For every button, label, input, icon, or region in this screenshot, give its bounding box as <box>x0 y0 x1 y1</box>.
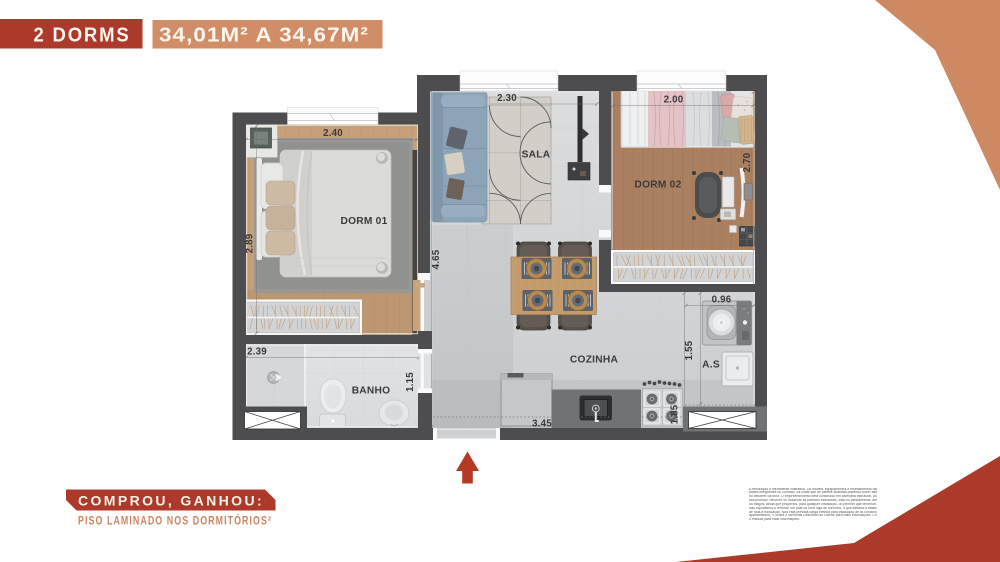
svg-text:COZINHA: COZINHA <box>570 355 619 366</box>
svg-text:0.96: 0.96 <box>712 295 732 306</box>
svg-text:2.89: 2.89 <box>245 233 256 253</box>
svg-text:BANHO: BANHO <box>352 386 391 397</box>
svg-text:2.30: 2.30 <box>497 93 517 104</box>
svg-text:1.15: 1.15 <box>405 372 416 392</box>
svg-text:COMPROU, GANHOU:: COMPROU, GANHOU: <box>78 494 264 510</box>
svg-text:1.85: 1.85 <box>669 404 680 424</box>
svg-text:2 DORMS: 2 DORMS <box>34 24 131 47</box>
svg-text:34,01M² A 34,67M²: 34,01M² A 34,67M² <box>159 24 369 47</box>
svg-text:4.65: 4.65 <box>431 249 442 269</box>
svg-text:1.55: 1.55 <box>684 340 695 360</box>
svg-text:A.S: A.S <box>702 360 720 371</box>
svg-text:DORM 02: DORM 02 <box>634 180 681 191</box>
svg-text:PISO LAMINADO NOS DORMITÓRIOS²: PISO LAMINADO NOS DORMITÓRIOS² <box>78 513 272 528</box>
svg-text:2.40: 2.40 <box>323 128 343 139</box>
svg-text:2.70: 2.70 <box>742 153 753 173</box>
svg-text:DORM 01: DORM 01 <box>340 216 387 227</box>
svg-text:SALA: SALA <box>522 150 551 161</box>
svg-text:2.00: 2.00 <box>664 95 684 106</box>
svg-text:3.45: 3.45 <box>532 419 552 430</box>
svg-text:2.39: 2.39 <box>247 347 267 358</box>
